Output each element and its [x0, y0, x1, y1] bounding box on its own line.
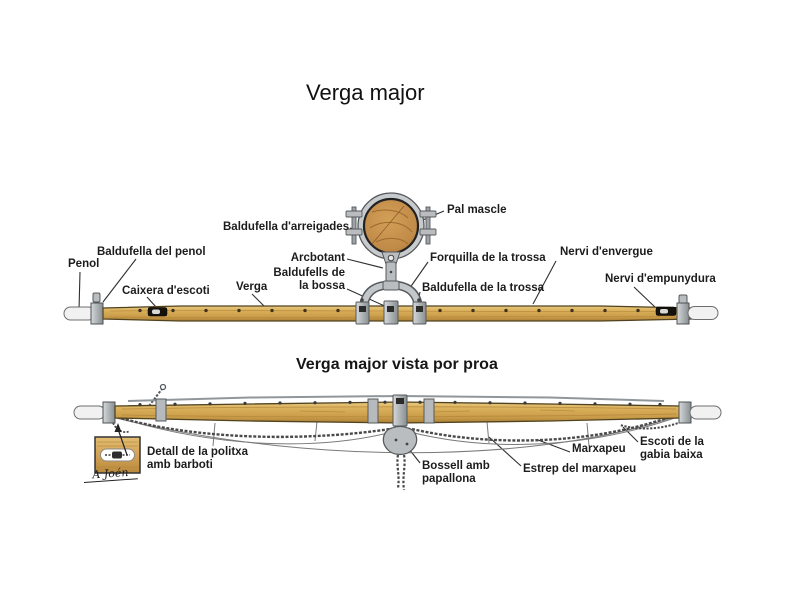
- label-bossell-amb-papallona: Bossell amb papallona: [422, 460, 510, 486]
- label-baldufella-de-la-trossa: Baldufella de la trossa: [422, 282, 544, 295]
- label-nervi-dempunydura: Nervi d'empunydura: [605, 273, 716, 286]
- label-caixera-descoti: Caixera d'escoti: [122, 285, 210, 298]
- label-forquilla-de-la-trossa: Forquilla de la trossa: [430, 252, 546, 265]
- label-marxapeu: Marxapeu: [572, 443, 626, 456]
- diagram-page: Verga major Verga major vista por proa: [0, 0, 800, 600]
- diagram-canvas: [0, 0, 800, 600]
- label-nervi-denvergue: Nervi d'envergue: [560, 246, 653, 259]
- label-baldufella-darreigades: Baldufella d'arreigades: [223, 221, 349, 234]
- label-verga: Verga: [236, 281, 267, 294]
- mast-clamp-drawing: [346, 193, 436, 324]
- label-baldufells-de-la-bossa: Baldufells de la bossa: [265, 267, 345, 293]
- label-baldufella-del-penol: Baldufella del penol: [97, 246, 206, 259]
- label-arcbotant: Arcbotant: [265, 252, 345, 265]
- label-estrep-del-marxapeu: Estrep del marxapeu: [523, 463, 636, 476]
- label-detall-politxa: Detall de la politxa amb barboti: [147, 446, 259, 472]
- label-escoti-gabia-baixa: Escoti de la gabia baixa: [640, 436, 718, 462]
- label-penol: Penol: [68, 258, 99, 271]
- label-pal-mascle: Pal mascle: [447, 204, 506, 217]
